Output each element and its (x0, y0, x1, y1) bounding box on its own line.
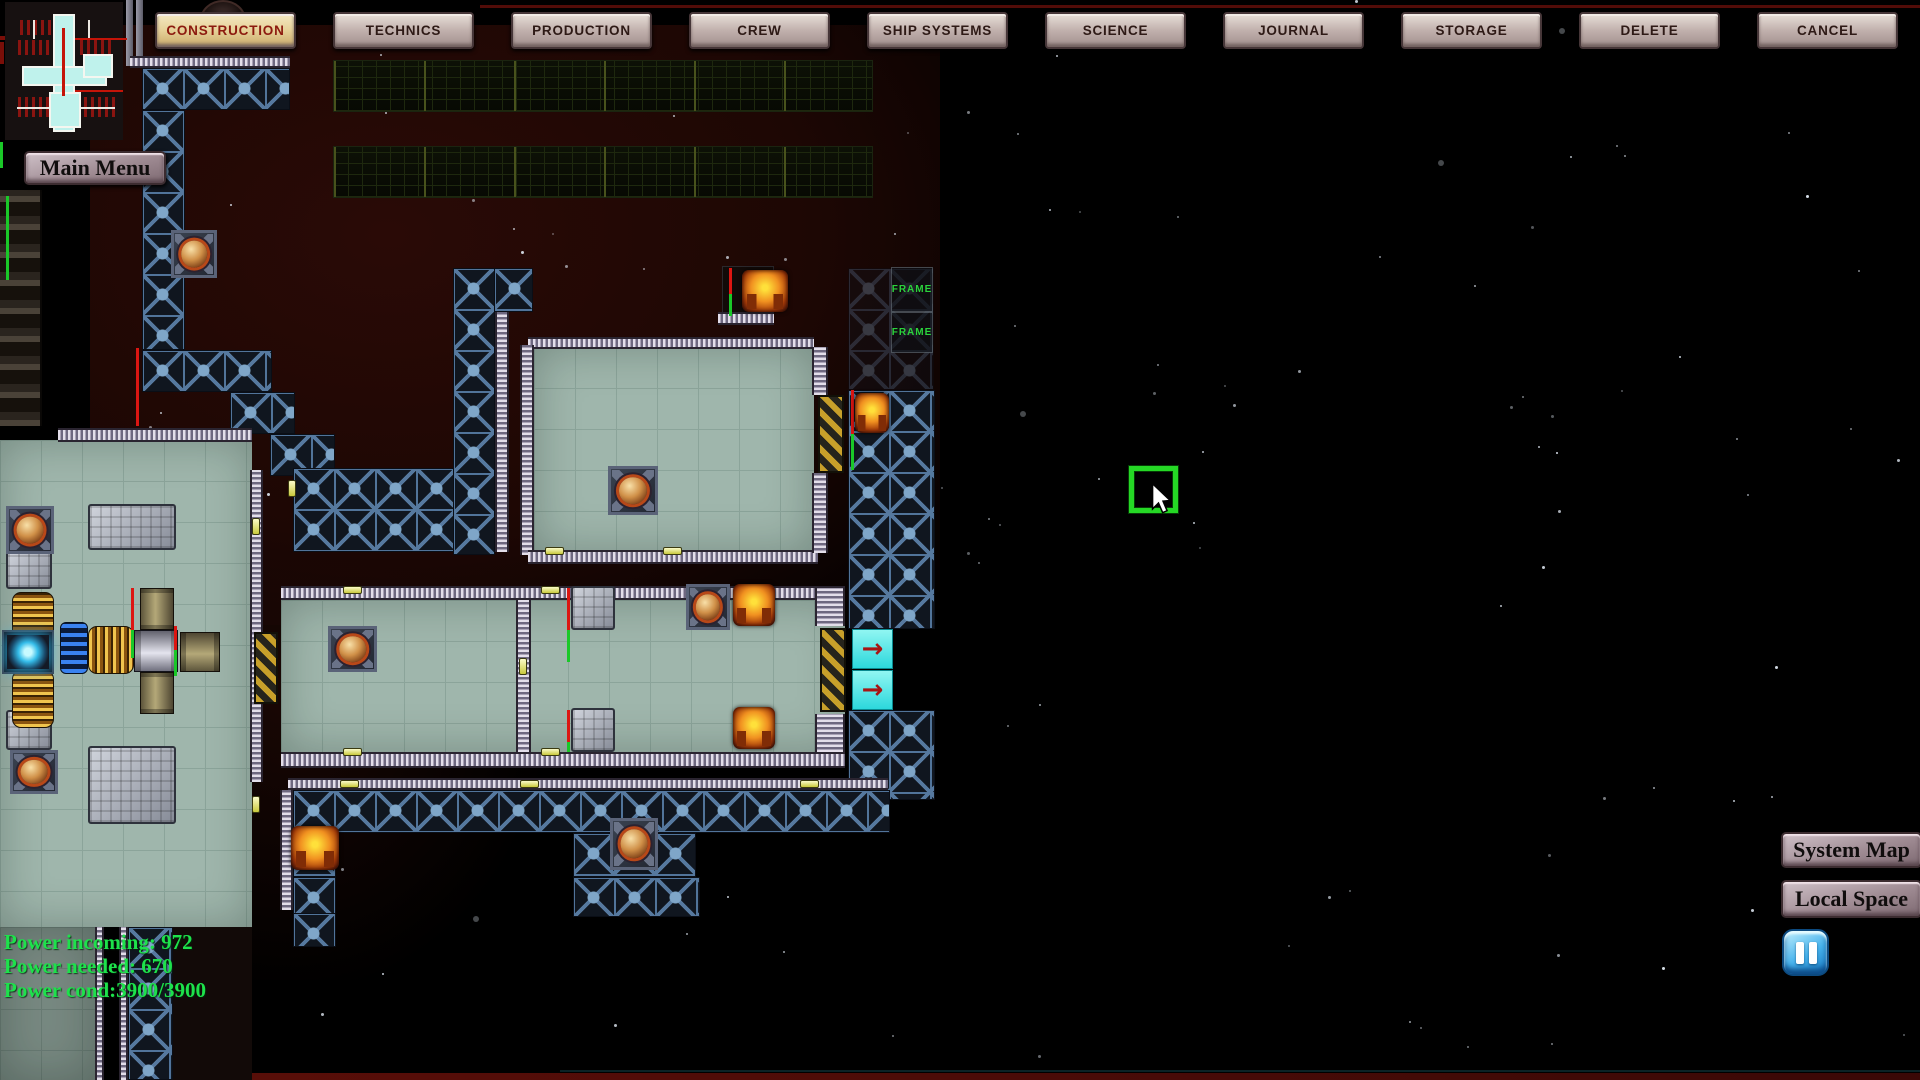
local-space-button[interactable]: Local Space (1781, 880, 1920, 918)
engine-core[interactable] (2, 630, 54, 674)
guide-line-red (567, 588, 570, 630)
minimap-hatch (18, 40, 53, 55)
star (1751, 909, 1754, 912)
star (1510, 406, 1513, 409)
star (1328, 896, 1331, 899)
wall-segment[interactable] (718, 312, 774, 325)
star (1153, 392, 1156, 395)
truss-section[interactable] (293, 790, 890, 833)
sphere-machine[interactable] (610, 818, 658, 870)
star (565, 265, 568, 268)
star (380, 54, 382, 56)
star (1806, 195, 1809, 198)
solar-panel[interactable] (333, 146, 873, 198)
star (1379, 256, 1381, 258)
star (1467, 1046, 1469, 1048)
sphere-machine[interactable] (10, 750, 58, 794)
wall-segment[interactable] (815, 588, 845, 626)
wall-light (520, 780, 539, 788)
star (1420, 1027, 1422, 1029)
star (1349, 890, 1351, 892)
cyan-conveyor-tile[interactable]: → (852, 670, 893, 710)
star (643, 268, 645, 270)
star (1298, 370, 1301, 373)
star (988, 518, 990, 520)
hull-marker-line (480, 5, 1920, 8)
wall-light (252, 796, 260, 813)
star (1557, 954, 1560, 957)
pause-button[interactable] (1782, 929, 1829, 976)
star (521, 251, 524, 254)
power-needed-text: Power needed: 670 (4, 954, 424, 978)
plate-machine[interactable] (88, 504, 176, 550)
star (614, 1024, 617, 1027)
hazard-door[interactable] (820, 628, 846, 712)
star (230, 204, 232, 206)
guide-line-green (0, 142, 3, 168)
star (1570, 156, 1572, 158)
system-map-label: System Map (1793, 837, 1910, 863)
guide-line-green (567, 742, 570, 752)
hull-marker-line (560, 1070, 1920, 1072)
wall-light (545, 547, 564, 555)
wall-light (541, 586, 560, 594)
minimap-line (88, 20, 90, 39)
guide-line-red (136, 348, 139, 426)
star (1474, 285, 1476, 287)
right-arrow-icon: → (862, 636, 884, 662)
star (1858, 270, 1860, 272)
toolbar-button-storage[interactable]: STORAGE (1401, 12, 1542, 49)
star (1193, 522, 1195, 524)
wall-segment[interactable] (288, 778, 888, 790)
guide-line-red (851, 390, 854, 434)
wall-segment[interactable] (58, 428, 252, 442)
wall-segment[interactable] (815, 714, 845, 752)
star (967, 111, 970, 114)
star (1522, 396, 1524, 398)
minimap-ship (83, 54, 113, 78)
main-menu-label: Main Menu (40, 155, 151, 181)
star (1551, 415, 1554, 418)
sphere-machine[interactable] (6, 506, 54, 554)
toolbar-button-ship-systems[interactable]: SHIP SYSTEMS (867, 12, 1008, 49)
hull-marker-line (0, 42, 4, 64)
truss-section[interactable] (142, 350, 272, 392)
star (267, 493, 270, 496)
robot-unit[interactable] (733, 707, 775, 749)
star (978, 562, 980, 564)
star (1538, 446, 1540, 448)
star (1020, 411, 1026, 417)
star (1098, 478, 1100, 480)
toolbar-button-science[interactable]: SCIENCE (1045, 12, 1186, 49)
wall-segment[interactable] (281, 752, 845, 768)
star (1056, 55, 1058, 57)
wall-light (663, 547, 682, 555)
star (1079, 211, 1081, 213)
star (1548, 854, 1551, 857)
star (1438, 160, 1444, 166)
star (1897, 459, 1900, 462)
cyan-conveyor-tile[interactable]: → (852, 629, 893, 669)
plate-machine[interactable] (6, 551, 52, 589)
pause-icon (1784, 931, 1827, 974)
star (513, 228, 515, 230)
truss-section[interactable] (573, 877, 700, 917)
truss-section[interactable] (453, 268, 495, 555)
star (1788, 132, 1790, 134)
star (1288, 945, 1290, 947)
power-incoming-text: Power incoming: 972 (4, 930, 424, 954)
star (1771, 796, 1773, 798)
guide-line-green (131, 630, 134, 658)
star (1903, 1034, 1905, 1036)
door-light (519, 658, 527, 675)
robot-unit[interactable] (291, 826, 339, 870)
wall-segment[interactable] (516, 600, 531, 752)
minimap-line (62, 28, 65, 96)
star (1355, 0, 1358, 3)
wall-segment[interactable] (520, 345, 534, 555)
system-map-button[interactable]: System Map (1781, 832, 1920, 868)
star (1733, 800, 1735, 802)
star (1177, 216, 1179, 218)
solar-panel[interactable] (333, 60, 873, 112)
right-arrow-icon: → (862, 677, 884, 703)
mouse-cursor (1150, 482, 1172, 514)
wall-segment[interactable] (130, 56, 290, 68)
star (1551, 1043, 1553, 1045)
star (1049, 209, 1051, 211)
local-space-label: Local Space (1795, 886, 1908, 912)
star (727, 896, 729, 898)
truss-section[interactable] (142, 68, 290, 110)
wall-light (340, 780, 359, 788)
wall-light (800, 780, 819, 788)
wall-segment[interactable] (812, 347, 828, 395)
frame-label: FRAME (892, 327, 933, 338)
wall-segment[interactable] (812, 473, 828, 553)
wall-light (288, 480, 296, 497)
star (552, 233, 554, 235)
wall-segment[interactable] (495, 312, 509, 552)
wall-segment[interactable] (250, 470, 263, 782)
star (784, 258, 787, 261)
robot-unit[interactable] (855, 393, 889, 433)
power-cond-text: Power cond:3900/3900 (4, 978, 424, 1002)
star (1556, 452, 1558, 454)
engine-coil[interactable] (12, 670, 54, 728)
star (160, 412, 162, 414)
star (967, 552, 970, 555)
star (999, 524, 1001, 526)
engine-cylinder[interactable] (140, 672, 174, 714)
plate-machine[interactable] (88, 746, 176, 824)
engine-blue-coil[interactable] (60, 622, 88, 674)
floor-room[interactable] (534, 347, 814, 552)
star (907, 132, 909, 134)
guide-line-green (174, 650, 177, 676)
minimap-hatch (80, 40, 113, 55)
frame-label: FRAME (892, 284, 933, 295)
star (1603, 797, 1606, 800)
toolbar-button-cancel[interactable]: CANCEL (1757, 12, 1898, 49)
starfield (0, 0, 1920, 1080)
wall-segment[interactable] (528, 337, 814, 349)
robot-unit[interactable] (742, 270, 788, 312)
star (1199, 547, 1201, 549)
toolbar-button-construction[interactable]: CONSTRUCTION (155, 12, 296, 49)
toolbar-button-production[interactable]: PRODUCTION (511, 12, 652, 49)
toolbar-button-journal[interactable]: JOURNAL (1223, 12, 1364, 49)
minimap-ship (49, 92, 81, 128)
minimap-hatch (20, 20, 53, 35)
star (1014, 325, 1016, 327)
main-menu-button[interactable]: Main Menu (24, 151, 166, 185)
wall-light (541, 748, 560, 756)
star (1850, 428, 1852, 430)
hazard-door[interactable] (818, 395, 844, 473)
star (1736, 438, 1738, 440)
sphere-machine[interactable] (608, 466, 658, 515)
guide-line-red (729, 268, 732, 294)
wall-light (343, 748, 362, 756)
toolbar-button-delete[interactable]: DELETE (1579, 12, 1720, 49)
sphere-machine[interactable] (686, 584, 730, 630)
engine-cylinder[interactable] (134, 630, 178, 672)
star (1038, 1055, 1041, 1058)
guide-line-green (567, 630, 570, 662)
star (1662, 967, 1665, 970)
star (1039, 704, 1041, 706)
star (1653, 787, 1655, 789)
toolbar-button-crew[interactable]: CREW (689, 12, 830, 49)
star (1621, 390, 1623, 392)
star (941, 487, 943, 489)
star (1531, 226, 1534, 229)
engine-cylinder[interactable] (180, 632, 220, 672)
guide-line-red (131, 588, 134, 630)
star (321, 1013, 324, 1016)
guide-line-red (567, 710, 570, 742)
wall-light (343, 586, 362, 594)
star (1679, 356, 1681, 358)
star (686, 933, 688, 935)
sphere-machine[interactable] (328, 626, 377, 672)
star (1616, 145, 1618, 147)
guide-line-green (729, 294, 732, 316)
star (1775, 666, 1778, 669)
guide-line-green (6, 196, 9, 280)
star (894, 233, 896, 235)
plate-machine[interactable] (571, 586, 615, 630)
sphere-machine[interactable] (171, 230, 217, 278)
plate-machine[interactable] (571, 708, 615, 752)
star (1747, 494, 1749, 496)
star (1559, 28, 1565, 34)
frame-cell[interactable]: FRAME (891, 267, 933, 312)
star (1233, 404, 1236, 407)
star (1157, 364, 1159, 366)
toolbar-button-technics[interactable]: TECHNICS (333, 12, 474, 49)
wall-light (252, 518, 260, 535)
frame-cell[interactable]: FRAME (891, 312, 933, 353)
game-viewport[interactable]: FRAME FRAME → → (0, 0, 1920, 1080)
star (1202, 451, 1204, 453)
star (1542, 566, 1545, 569)
star (341, 868, 344, 871)
minimap[interactable] (5, 2, 123, 140)
bottom-edge-strip (168, 1073, 1920, 1080)
star (1224, 385, 1226, 387)
star (1409, 1021, 1411, 1023)
star (1558, 510, 1561, 513)
guide-line-green (851, 434, 854, 470)
star (1017, 133, 1019, 135)
robot-unit[interactable] (733, 584, 775, 626)
minimap-line (33, 20, 35, 39)
star (385, 112, 387, 114)
star (1500, 605, 1502, 607)
star (673, 115, 675, 117)
star (472, 199, 475, 202)
star (473, 916, 479, 922)
star (783, 951, 785, 953)
star (1007, 725, 1009, 727)
star (892, 1035, 894, 1037)
star (1624, 155, 1626, 157)
guide-line-red (174, 626, 177, 650)
star (726, 256, 729, 259)
hazard-door[interactable] (254, 632, 278, 704)
engine-coil[interactable] (88, 626, 134, 674)
engine-cylinder[interactable] (140, 588, 174, 630)
